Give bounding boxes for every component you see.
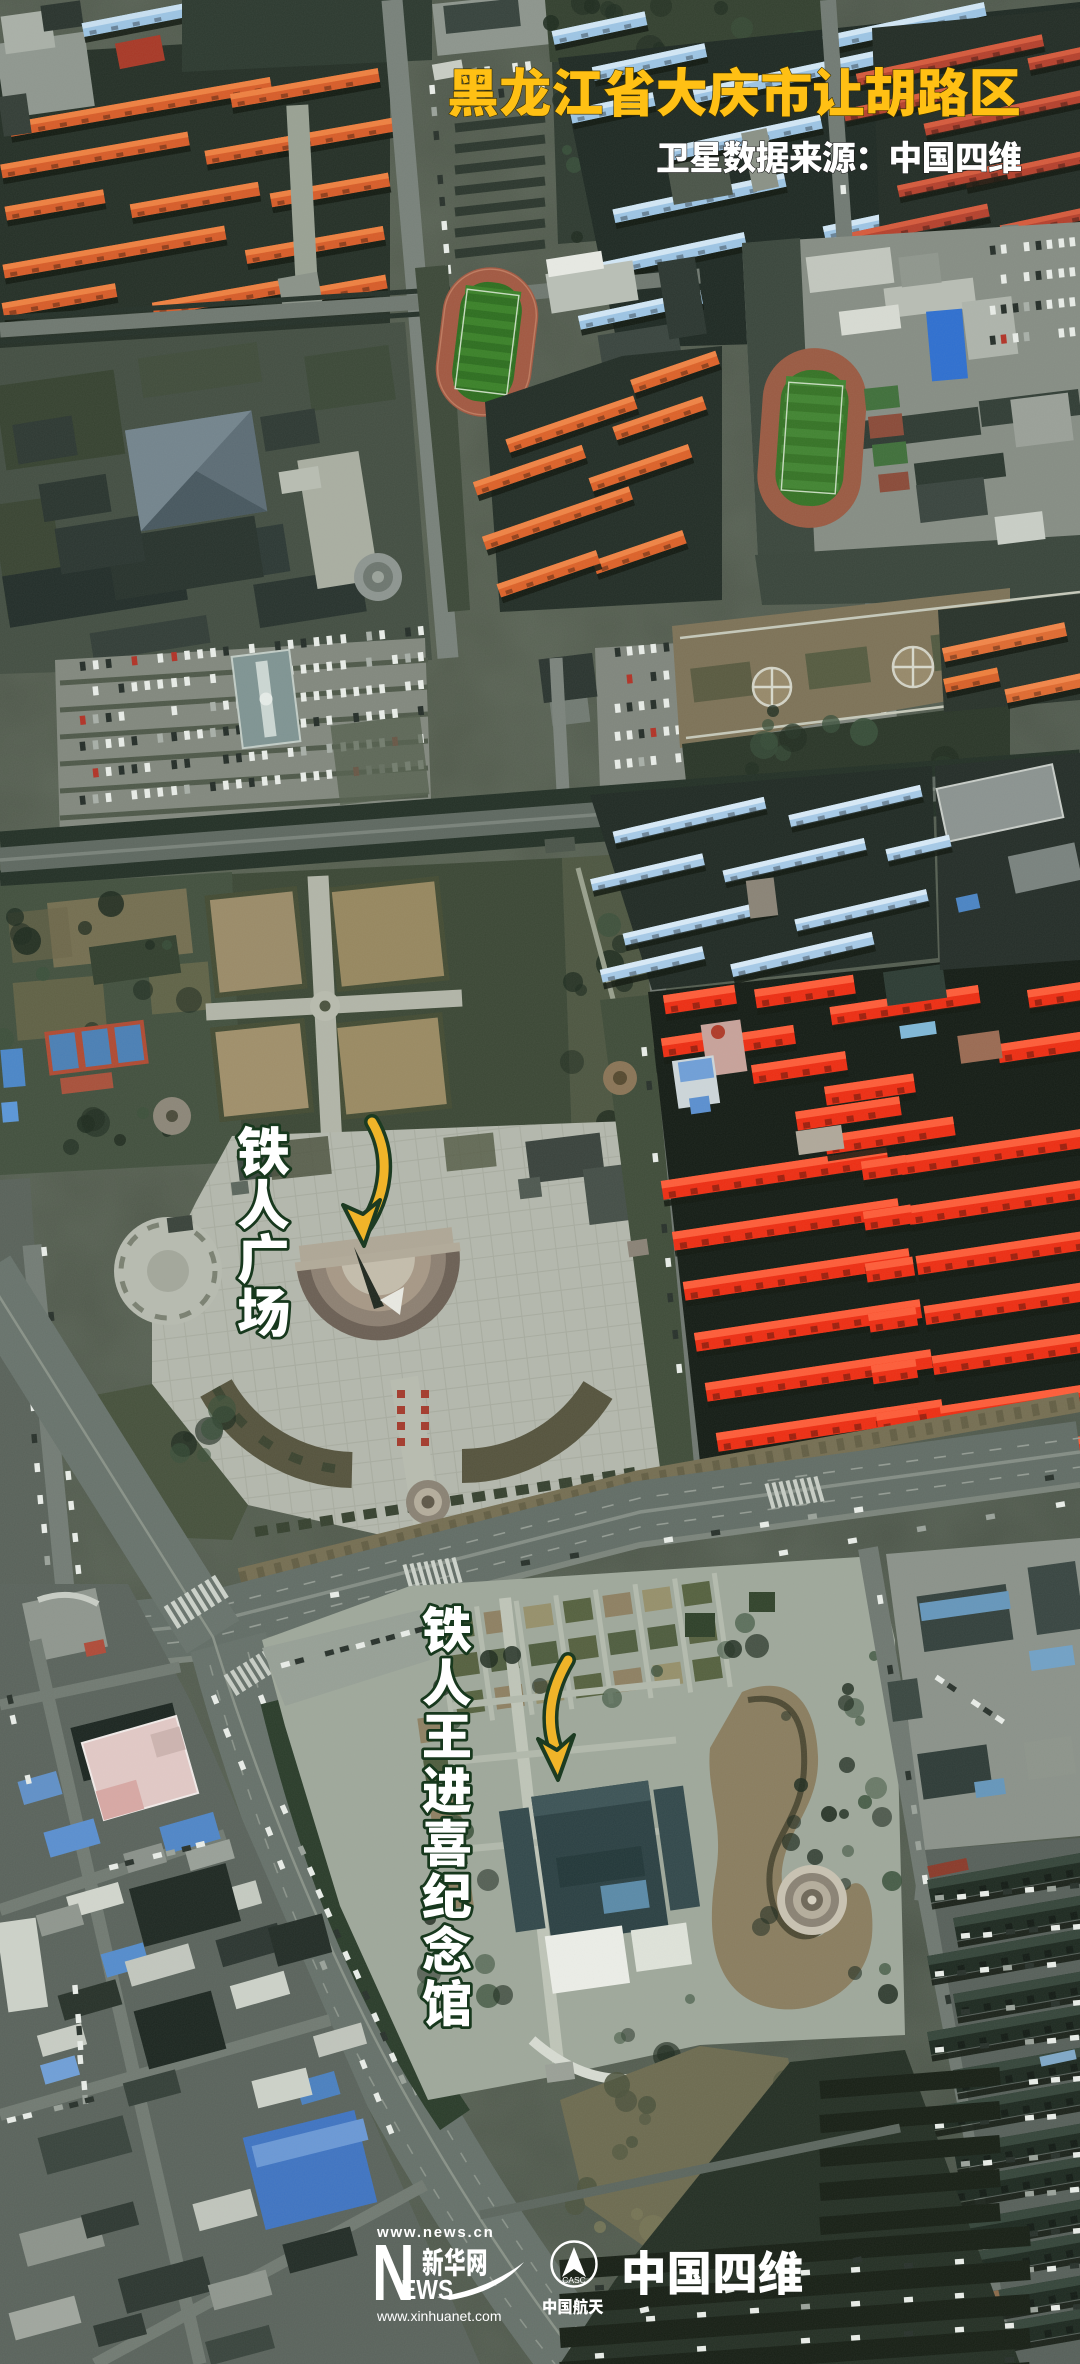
svg-text:EWS: EWS: [401, 2275, 453, 2306]
svg-text:CASC: CASC: [562, 2275, 586, 2285]
svg-text:www.xinhuanet.com: www.xinhuanet.com: [376, 2308, 502, 2324]
